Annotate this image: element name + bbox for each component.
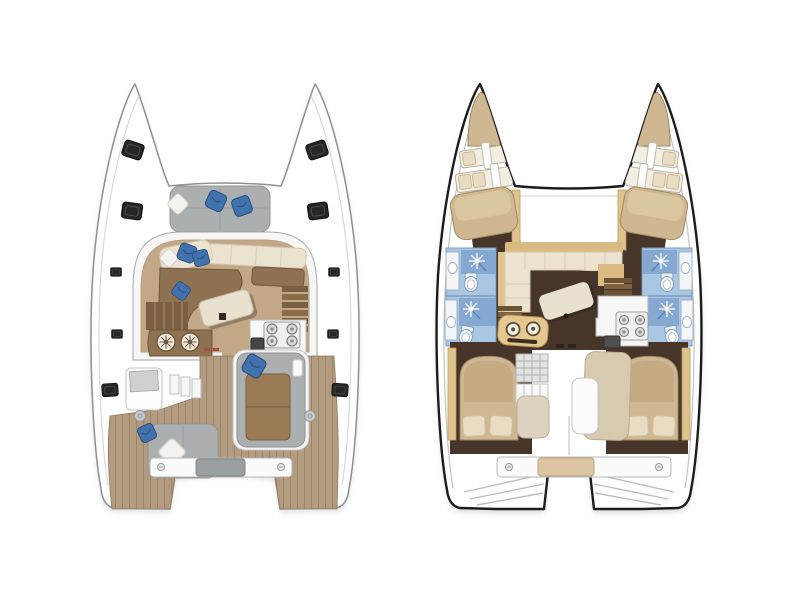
galley-sink-unit <box>497 314 549 347</box>
aft-crossbeam <box>150 458 292 477</box>
interior-contents <box>444 92 694 505</box>
foredeck-sun-cushions <box>167 186 270 232</box>
aft-crossbeam <box>497 457 671 477</box>
catamaran-layout-image <box>0 0 800 600</box>
interior-plan <box>437 84 702 513</box>
lounger-detail <box>293 360 302 376</box>
cabinet-top <box>129 370 158 391</box>
cockpit <box>108 350 338 509</box>
layout-canvas <box>0 0 800 600</box>
cockpit-cabinet <box>126 368 162 410</box>
port-hull-stairs <box>146 302 188 330</box>
door-sill <box>556 344 564 348</box>
galley <box>596 296 648 348</box>
galley-counter <box>148 330 219 356</box>
cockpit-lounger <box>233 350 309 450</box>
dinette-seat <box>252 267 305 288</box>
cabin-ottoman <box>517 396 549 438</box>
cockpit-ghost-seat <box>572 378 598 434</box>
galley-sink <box>604 336 620 348</box>
table-post <box>219 313 226 320</box>
galley-detail <box>204 348 210 351</box>
deck-plan <box>91 84 359 513</box>
saloon <box>133 232 317 362</box>
sofa-trim <box>498 252 505 312</box>
galley-detail <box>213 348 219 351</box>
door-sill <box>568 344 576 348</box>
table-post <box>564 314 569 319</box>
crossbeam-step <box>196 459 245 476</box>
sofa-backrest <box>505 242 623 253</box>
crossbeam-pad <box>538 458 594 476</box>
